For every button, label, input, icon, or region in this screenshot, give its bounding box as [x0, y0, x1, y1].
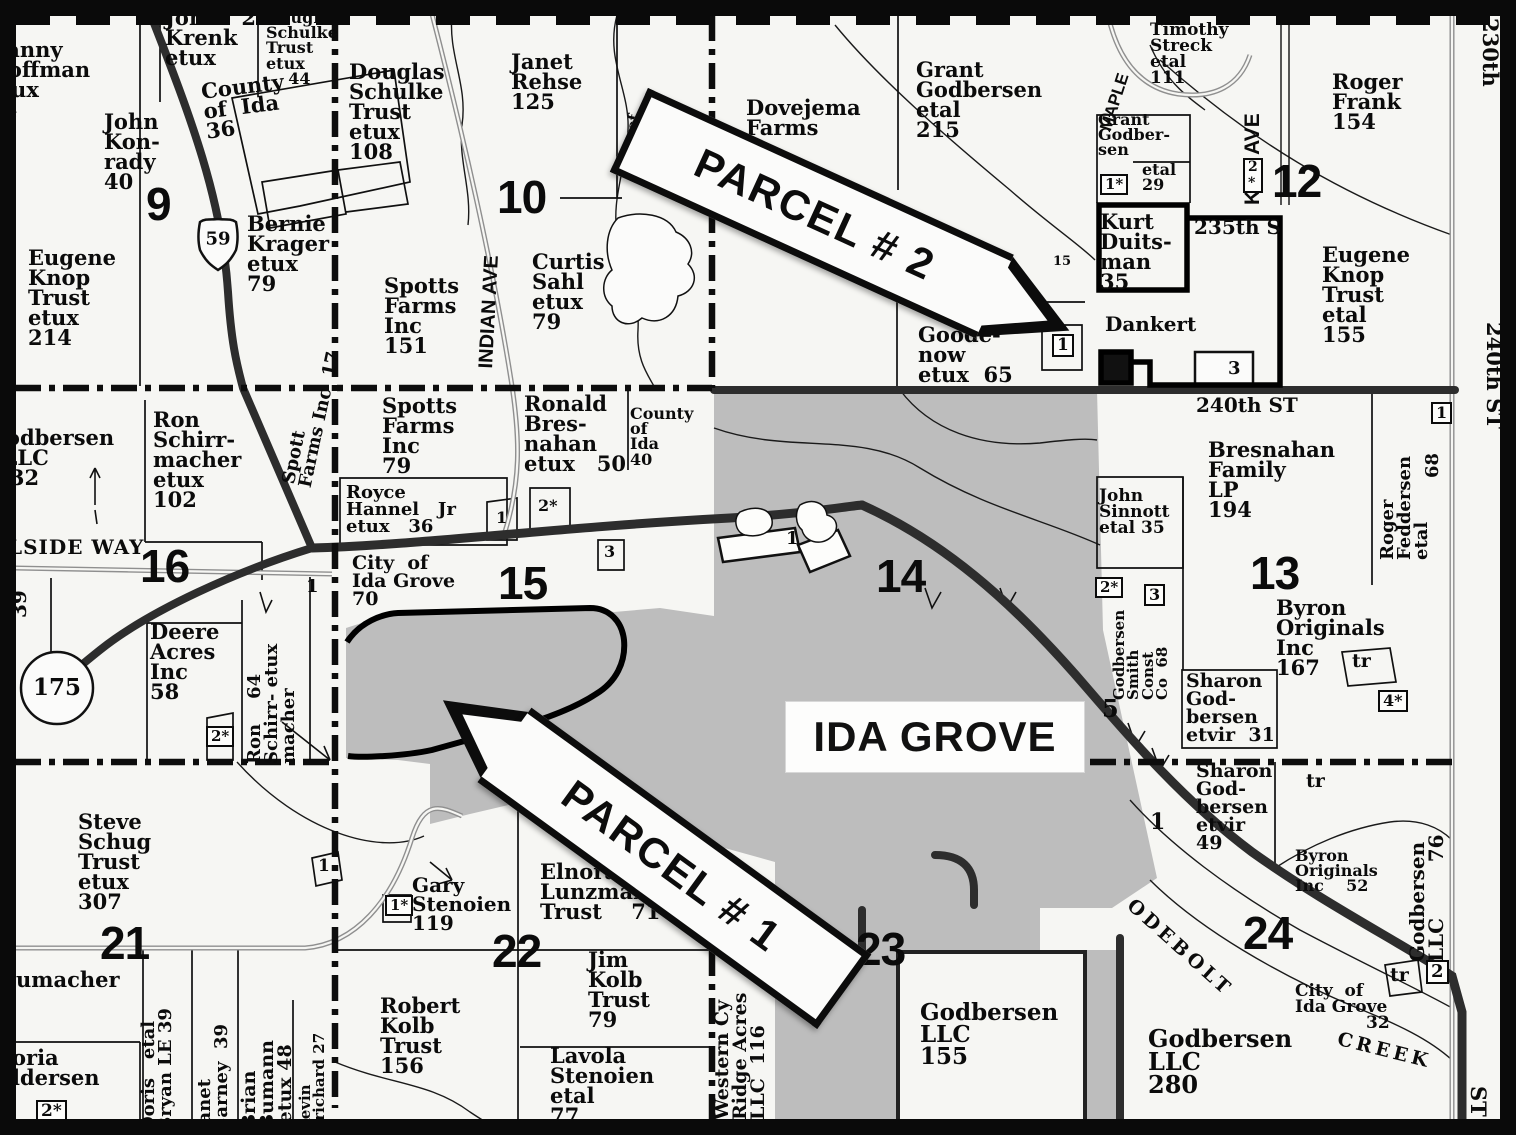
godbersen-155-parcel: [898, 952, 1085, 1135]
route-175-circle: [21, 652, 93, 724]
city-name-plate: IDA GROVE: [786, 702, 1084, 772]
plat-map: Danny Hoffman etux 44John 21 Krenk etuxD…: [0, 0, 1516, 1135]
